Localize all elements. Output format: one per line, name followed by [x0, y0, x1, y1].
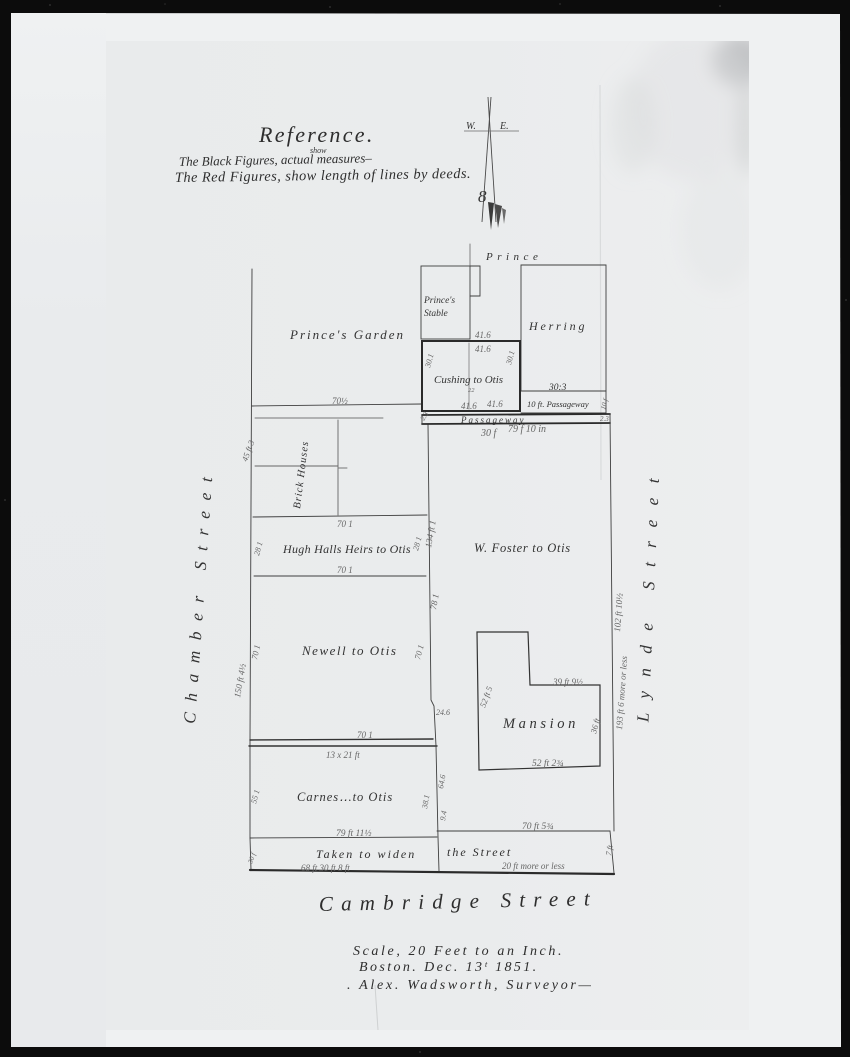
- svg-text:70 1: 70 1: [337, 519, 353, 529]
- svg-text:E.: E.: [499, 121, 509, 132]
- svg-text:Hugh Halls Heirs to Otis: Hugh Halls Heirs to Otis: [282, 542, 411, 556]
- svg-text:20 ft more or less: 20 ft more or less: [502, 861, 565, 871]
- svg-text:22: 22: [468, 387, 475, 394]
- svg-text:Boston. Dec. 13ᵗ 1851.: Boston. Dec. 13ᵗ 1851.: [359, 960, 539, 975]
- svg-text:Carnes‥.to Otis: Carnes‥.to Otis: [297, 790, 393, 804]
- svg-text:70 1: 70 1: [337, 565, 353, 575]
- svg-text:30 f: 30 f: [480, 428, 498, 439]
- svg-text:Mansion: Mansion: [502, 716, 579, 732]
- svg-text:Herring: Herring: [528, 319, 587, 333]
- svg-text:Prince's Garden: Prince's Garden: [289, 327, 405, 342]
- svg-text:Cushing to Otis: Cushing to Otis: [434, 374, 503, 386]
- svg-text:the Street: the Street: [447, 845, 512, 859]
- svg-text:79 f 10 in: 79 f 10 in: [508, 424, 546, 435]
- svg-text:52 ft 2¾: 52 ft 2¾: [532, 758, 563, 769]
- svg-text:70 1: 70 1: [357, 730, 373, 740]
- svg-text:9.4: 9.4: [438, 810, 449, 821]
- svg-text:Prince's: Prince's: [423, 296, 455, 306]
- svg-text:Newell to Otis: Newell to Otis: [301, 643, 397, 658]
- svg-text:70½: 70½: [332, 396, 348, 406]
- svg-text:39 ft 9½: 39 ft 9½: [552, 677, 583, 687]
- svg-text:68 ft 30 ft 8 ft: 68 ft 30 ft 8 ft: [301, 863, 350, 873]
- svg-text:Taken to widen: Taken to widen: [316, 847, 416, 861]
- svg-text:10 ft. Passageway: 10 ft. Passageway: [527, 399, 589, 409]
- svg-text:Scale, 20 Feet to an Inch.: Scale, 20 Feet to an Inch.: [353, 944, 564, 959]
- svg-text:41.6: 41.6: [487, 399, 503, 409]
- svg-text:Reference.: Reference.: [258, 122, 375, 147]
- svg-text:79 ft 11½: 79 ft 11½: [336, 828, 371, 839]
- svg-text:41.6: 41.6: [461, 401, 477, 411]
- svg-text:8: 8: [478, 187, 487, 206]
- svg-text:W.: W.: [466, 121, 476, 132]
- svg-text:Prince: Prince: [485, 251, 542, 263]
- svg-text:24.6: 24.6: [436, 708, 450, 717]
- svg-text:30:3: 30:3: [548, 383, 567, 393]
- svg-text:W. Foster to Otis: W. Foster to Otis: [474, 541, 571, 555]
- svg-text:. Alex. Wadsworth, Surveyor—: . Alex. Wadsworth, Surveyor—: [347, 978, 594, 993]
- svg-text:13 x 21 ft: 13 x 21 ft: [326, 750, 360, 760]
- svg-text:Stable: Stable: [424, 309, 448, 319]
- svg-text:41.6: 41.6: [475, 330, 491, 340]
- svg-text:70 ft 5¾: 70 ft 5¾: [522, 821, 553, 832]
- svg-text:41.6: 41.6: [475, 344, 491, 354]
- svg-text:2.3: 2.3: [600, 415, 609, 423]
